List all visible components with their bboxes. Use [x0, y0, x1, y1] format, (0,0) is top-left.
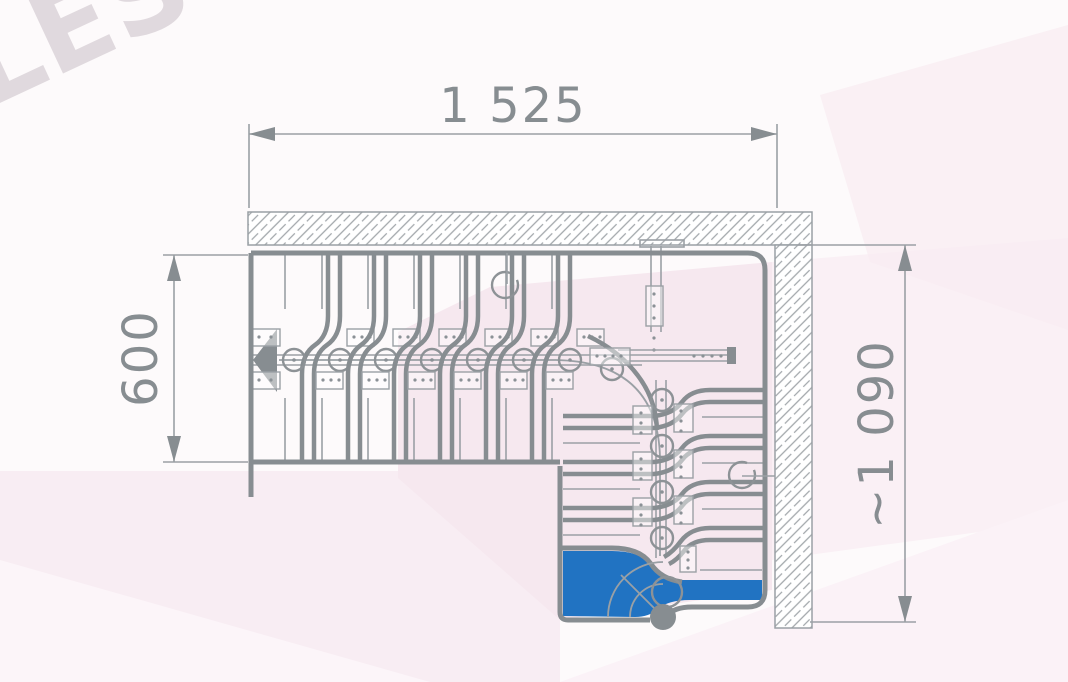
dim-arrow-down-icon — [167, 436, 181, 462]
support-post — [650, 604, 676, 630]
dim-arrow-up-icon — [898, 245, 912, 271]
lower-flight-treads — [563, 389, 763, 572]
staircase-plan-drawing: LESTNICYPROSTO.RU — [0, 0, 1068, 682]
dimension-left-label: 600 — [113, 309, 169, 407]
dimension-top: 1 525 — [249, 78, 777, 208]
stair-plan-svg: 1 525 600 ~1 090 — [0, 0, 1068, 682]
dimension-right-label: ~1 090 — [849, 339, 905, 529]
walk-line — [252, 329, 736, 558]
dim-arrow-up-icon — [167, 255, 181, 281]
upper-flight-treads — [283, 253, 604, 462]
dim-arrow-left-icon — [249, 127, 275, 141]
wall-top — [248, 212, 812, 247]
dim-arrow-right-icon — [751, 127, 777, 141]
dimension-right: ~1 090 — [798, 245, 916, 622]
dim-arrow-down-icon — [898, 596, 912, 622]
dimension-left: 600 — [113, 255, 248, 462]
dimension-top-label: 1 525 — [439, 78, 586, 134]
wall-right — [775, 245, 812, 628]
